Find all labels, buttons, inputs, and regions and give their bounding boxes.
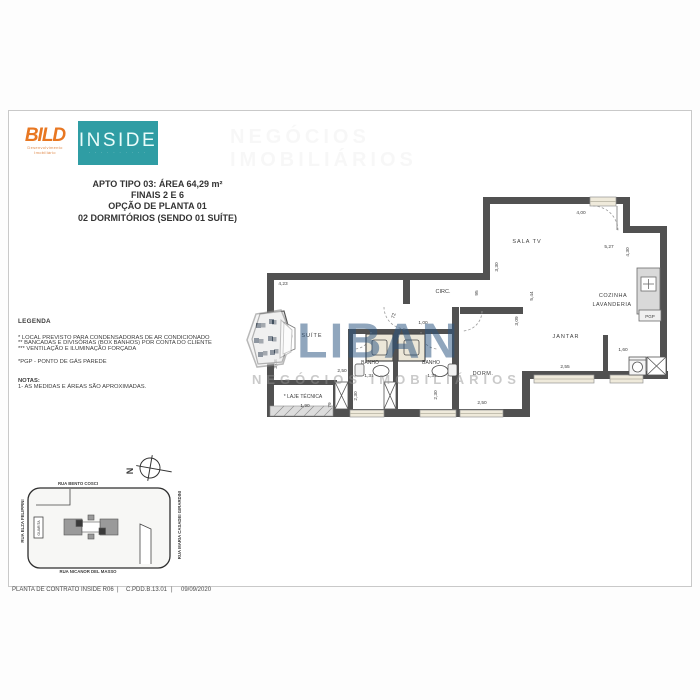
sitemap xyxy=(28,488,170,568)
footer-separator-1: | xyxy=(117,587,119,593)
room-lavanderia: LAVANDERIA xyxy=(592,302,631,308)
dim-79: 79 xyxy=(327,402,333,408)
watermark-subtext: NEGÓCIOS IMOBILIÁRIOS xyxy=(252,372,521,387)
dim-5-27: 5,27 xyxy=(604,244,614,250)
dim-1-90: 1,90 xyxy=(300,403,310,409)
dim-95: 95 xyxy=(474,290,480,296)
dim-4-23: 4,23 xyxy=(278,281,288,287)
dim-4-30: 4,30 xyxy=(625,247,631,257)
footer: PLANTA DE CONTRATO INSIDE R06 | C.PDD.B.… xyxy=(0,587,700,599)
room-sala-tv: SALA TV xyxy=(512,239,541,245)
compass-icon xyxy=(134,453,174,485)
street-right: RUA MARIA CASADEI GIRARDINI xyxy=(177,491,182,559)
street-bottom: RUA NICANOR DEL MASSO xyxy=(59,569,117,574)
street-top: RUA BENTO COSCI xyxy=(58,481,98,486)
compass-letter: N xyxy=(125,468,135,475)
footer-code: C.PDD.B.13.01 xyxy=(126,587,167,593)
guarita-label: GUARITA xyxy=(37,520,41,536)
dim-1-60: 1,60 xyxy=(618,347,628,353)
washing-machine-icon xyxy=(629,357,646,375)
dim-5-44: 5,44 xyxy=(529,291,535,301)
watermark-text: LIBAN xyxy=(297,316,460,367)
sitemap-right-structure xyxy=(140,524,151,564)
dim-3-09: 3,09 xyxy=(514,316,520,326)
footer-date: 09/09/2020 xyxy=(181,587,211,593)
room-jantar: JANTAR xyxy=(553,334,580,340)
street-left: RUA ELZA FELIPPINI xyxy=(20,499,25,542)
room-laje-tecnica: * LAJE TÉCNICA xyxy=(284,393,323,400)
dim-2-55: 2,55 xyxy=(560,364,570,370)
watermark-emblem xyxy=(243,306,295,375)
footer-plan-name: PLANTA DE CONTRATO INSIDE R06 xyxy=(12,587,114,593)
footer-separator-2: | xyxy=(171,587,173,593)
dim-4-00: 4,00 xyxy=(576,210,586,216)
dim-2-30-b: 2,30 xyxy=(433,390,439,400)
dim-3-30: 3,30 xyxy=(494,262,500,272)
room-circ: CIRC. xyxy=(436,289,451,295)
pgp-label: PGP xyxy=(645,314,655,319)
room-cozinha: COZINHA xyxy=(599,293,627,299)
dim-2-50-dorm: 2,50 xyxy=(477,400,487,406)
dim-2-30-a: 2,30 xyxy=(353,391,359,401)
